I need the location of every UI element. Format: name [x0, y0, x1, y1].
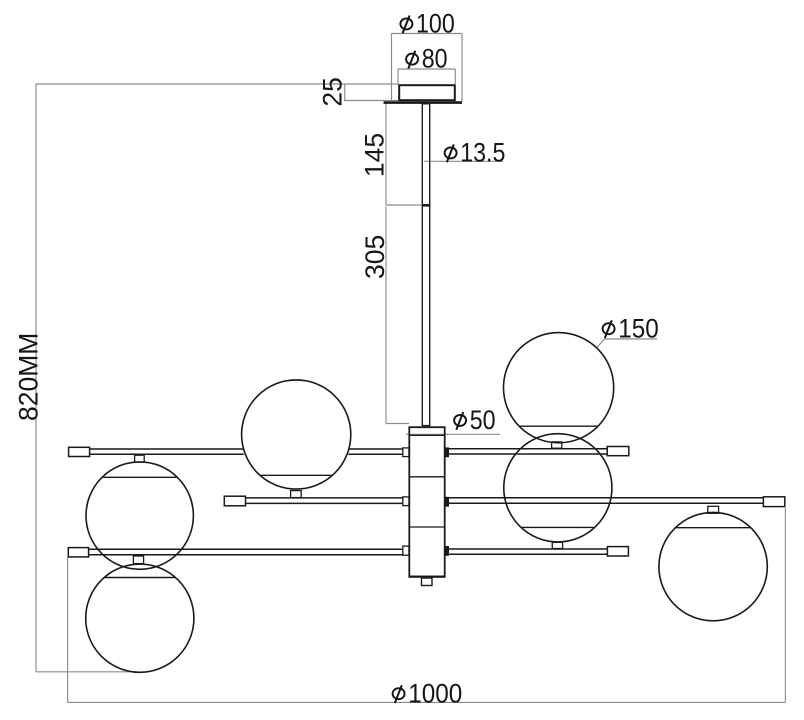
svg-text:13.5: 13.5: [460, 138, 505, 168]
svg-text:25: 25: [318, 77, 348, 106]
svg-text:100: 100: [416, 9, 455, 39]
svg-text:820MM: 820MM: [14, 333, 44, 421]
svg-text:305: 305: [360, 235, 390, 279]
svg-text:145: 145: [359, 133, 389, 177]
svg-text:1000: 1000: [408, 679, 462, 708]
svg-text:80: 80: [422, 44, 448, 74]
svg-text:50: 50: [470, 405, 496, 435]
svg-text:150: 150: [618, 314, 659, 343]
